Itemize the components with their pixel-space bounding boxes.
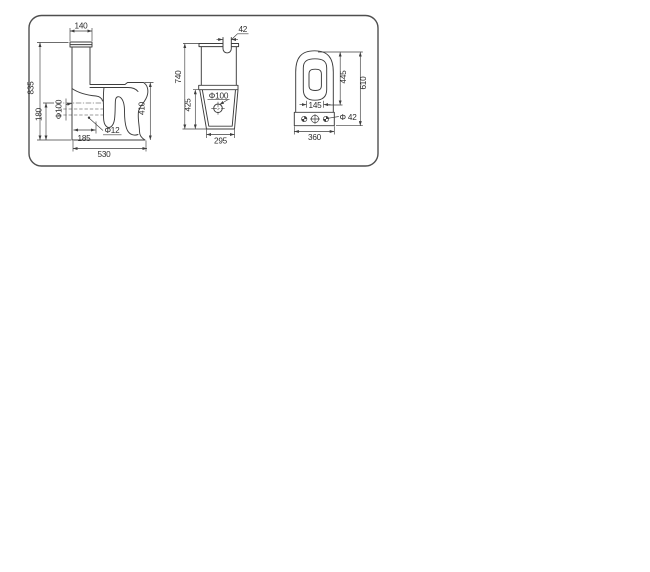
- top-extension-lines: [294, 52, 363, 135]
- dim-label-inlet-width: 42: [238, 25, 247, 34]
- side-view: 140 835 180 Φ100 Φ12 185 530 410: [27, 22, 154, 160]
- outlet-hidden-lines: [58, 109, 103, 115]
- drain-label-leader: [220, 100, 229, 105]
- dim-label-total-depth: 530: [97, 150, 111, 159]
- drawing-border: [29, 16, 378, 167]
- dim-label-outlet-diameter: Φ100: [55, 99, 64, 119]
- top-view: 445 610 145 360 Φ 42: [294, 51, 368, 142]
- inlet-leader: [232, 34, 249, 40]
- bolt-hole-symbol-right: [323, 116, 328, 121]
- dim-label-fixing-hole: Φ12: [104, 126, 120, 135]
- dim-label-drain-diameter: Φ100: [209, 91, 229, 100]
- drain-hole-centerlines: [211, 102, 224, 115]
- outlet-diameter-leader: [66, 103, 72, 104]
- inlet-hole-symbol: [310, 114, 320, 124]
- dim-label-outlet-height: 180: [35, 107, 44, 121]
- dim-label-opening-width: 145: [308, 101, 322, 110]
- hole-diameter-leader: [329, 117, 339, 119]
- top-outline-path: [294, 51, 334, 126]
- front-profile-path: [199, 38, 239, 130]
- dim-label-base-width: 295: [214, 137, 228, 146]
- dim-label-hole-diameter: Φ 42: [340, 113, 358, 122]
- dim-label-base-height: 425: [183, 98, 192, 112]
- dim-label-tank-width: 140: [74, 22, 88, 31]
- inlet-crosshair: [310, 114, 320, 124]
- front-view: 42 740 425 Φ100 295: [174, 25, 249, 145]
- dim-label-seat-height: 410: [137, 101, 146, 115]
- dim-label-tank-height: 740: [174, 70, 183, 84]
- dim-label-tank-width-top: 360: [308, 133, 322, 142]
- dim-label-depth-total: 610: [359, 76, 368, 90]
- spec-sheet-canvas: 140 835 180 Φ100 Φ12 185 530 410 42 740 …: [0, 0, 650, 572]
- bolt-hole-symbol-left: [302, 116, 307, 121]
- technical-drawing: 140 835 180 Φ100 Φ12 185 530 410 42 740 …: [0, 0, 650, 572]
- dim-label-total-height: 835: [27, 81, 36, 95]
- dim-label-outlet-offset: 185: [77, 134, 91, 143]
- dim-label-seat-length: 445: [339, 70, 348, 84]
